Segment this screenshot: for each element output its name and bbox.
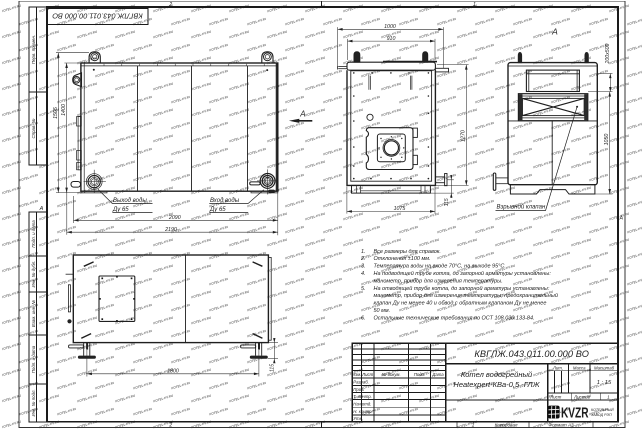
svg-text:№ докум.: № докум.: [382, 372, 401, 377]
svg-text:2: 2: [168, 2, 172, 8]
svg-text:Лит.: Лит.: [552, 365, 563, 370]
svg-text:KVZR: KVZR: [561, 404, 589, 421]
svg-text:Дата: Дата: [431, 372, 444, 377]
svg-text:А: А: [551, 27, 558, 37]
svg-text:На подводящей трубе котла, до: На подводящей трубе котла, до запорной а…: [374, 270, 552, 277]
svg-text:Температура воды на входе 70°С: Температура воды на входе 70°С, на выход…: [374, 264, 506, 270]
svg-text:1800: 1800: [167, 368, 179, 374]
svg-text:1: 1: [473, 2, 476, 8]
svg-text:2090: 2090: [168, 215, 181, 221]
svg-text:Листов: Листов: [573, 395, 590, 400]
svg-text:манометр, прибор для измерения: манометр, прибор для измерения температу…: [374, 278, 503, 284]
svg-text:Масса: Масса: [573, 365, 586, 370]
svg-text:115: 115: [444, 198, 450, 206]
svg-text:На отводящей трубе котла, до з: На отводящей трубе котла, до запорной ар…: [374, 285, 550, 292]
svg-text:Подп.: Подп.: [414, 372, 425, 377]
svg-text:ЗАВОД РЭП: ЗАВОД РЭП: [591, 413, 612, 417]
svg-text:2190: 2190: [164, 227, 177, 233]
svg-text:1505: 1505: [53, 107, 59, 119]
svg-text:1: 1: [472, 423, 475, 429]
svg-text:Остальные технические требован: Остальные технические требования по ОСТ …: [374, 315, 535, 321]
svg-text:Инв. № дубл.: Инв. № дубл.: [31, 260, 36, 287]
svg-text:А: А: [619, 216, 624, 222]
svg-text:Н. контр.: Н. контр.: [353, 409, 372, 414]
svg-text:1000: 1000: [384, 24, 396, 30]
svg-text:1 : 15: 1 : 15: [597, 380, 612, 386]
svg-text:2: 2: [168, 423, 172, 429]
svg-text:клапан Ду не менее 40 и обвод: клапан Ду не менее 40 и обвод с обратным…: [374, 301, 547, 307]
svg-text:4.: 4.: [361, 271, 366, 277]
svg-text:6.: 6.: [361, 315, 366, 321]
svg-text:Подп. и дата: Подп. и дата: [31, 220, 36, 248]
svg-text:Разраб.: Разраб.: [353, 380, 369, 385]
svg-text:Ду 65: Ду 65: [112, 207, 129, 213]
svg-text:Пров.: Пров.: [353, 387, 364, 392]
svg-text:Формат А3: Формат А3: [548, 422, 574, 427]
svg-text:Копировал: Копировал: [495, 422, 518, 427]
svg-text:50 мм.: 50 мм.: [374, 308, 391, 314]
svg-text:5.: 5.: [361, 286, 366, 292]
svg-text:Выход воды: Выход воды: [113, 198, 147, 204]
svg-text:КОТЕЛЬНЫЙ: КОТЕЛЬНЫЙ: [591, 408, 614, 412]
svg-text:Справ. №: Справ. №: [31, 118, 36, 138]
svg-text:Т. контр.: Т. контр.: [353, 394, 372, 399]
svg-text:Взрывной клапан: Взрывной клапан: [497, 203, 546, 210]
svg-text:А: А: [299, 109, 305, 118]
svg-text:Утв.: Утв.: [353, 416, 363, 421]
svg-text:2.: 2.: [360, 256, 366, 262]
svg-text:КВГЛЖ.043.011.00.000 ВО: КВГЛЖ.043.011.00.000 ВО: [474, 349, 589, 359]
svg-text:Нач.отд.: Нач.отд.: [353, 402, 371, 407]
svg-text:115: 115: [270, 364, 276, 372]
svg-text:3.: 3.: [361, 264, 366, 270]
svg-text:1075: 1075: [394, 206, 406, 212]
svg-text:1050: 1050: [604, 134, 610, 146]
svg-text:200х500: 200х500: [605, 43, 611, 64]
svg-text:Все размеры для справок.: Все размеры для справок.: [374, 249, 441, 255]
svg-text:манометр, прибор для измерения: манометр, прибор для измерения температу…: [374, 292, 558, 299]
svg-text:Взам. инв. №: Взам. инв. №: [31, 300, 36, 327]
svg-text:Лист: Лист: [549, 395, 561, 400]
svg-text:1400: 1400: [61, 104, 67, 116]
svg-text:Масштаб: Масштаб: [594, 365, 615, 370]
svg-text:Подп. и дата: Подп. и дата: [31, 345, 36, 373]
svg-text:Ду 65: Ду 65: [209, 207, 226, 213]
svg-text:910: 910: [387, 36, 396, 42]
svg-text:Котел водогрейный: Котел водогрейный: [461, 370, 533, 379]
svg-text:1.: 1.: [361, 249, 366, 255]
svg-text:Лист: Лист: [361, 372, 373, 377]
svg-text:Отклонения ±100 мм.: Отклонения ±100 мм.: [374, 256, 431, 262]
svg-text:1270: 1270: [461, 130, 467, 142]
svg-text:Изм.: Изм.: [352, 372, 361, 377]
svg-text:А: А: [39, 206, 44, 212]
svg-text:Heatexpert-КВа-0,5 -ГЛЖ: Heatexpert-КВа-0,5 -ГЛЖ: [453, 380, 540, 389]
svg-text:Перв. примен.: Перв. примен.: [31, 35, 36, 64]
svg-text:Инв. № подл.: Инв. № подл.: [31, 389, 36, 416]
svg-text:Вход воды: Вход воды: [210, 198, 240, 204]
svg-text:КВГЛЖ.043.011.00.000 ВО: КВГЛЖ.043.011.00.000 ВО: [52, 12, 143, 21]
